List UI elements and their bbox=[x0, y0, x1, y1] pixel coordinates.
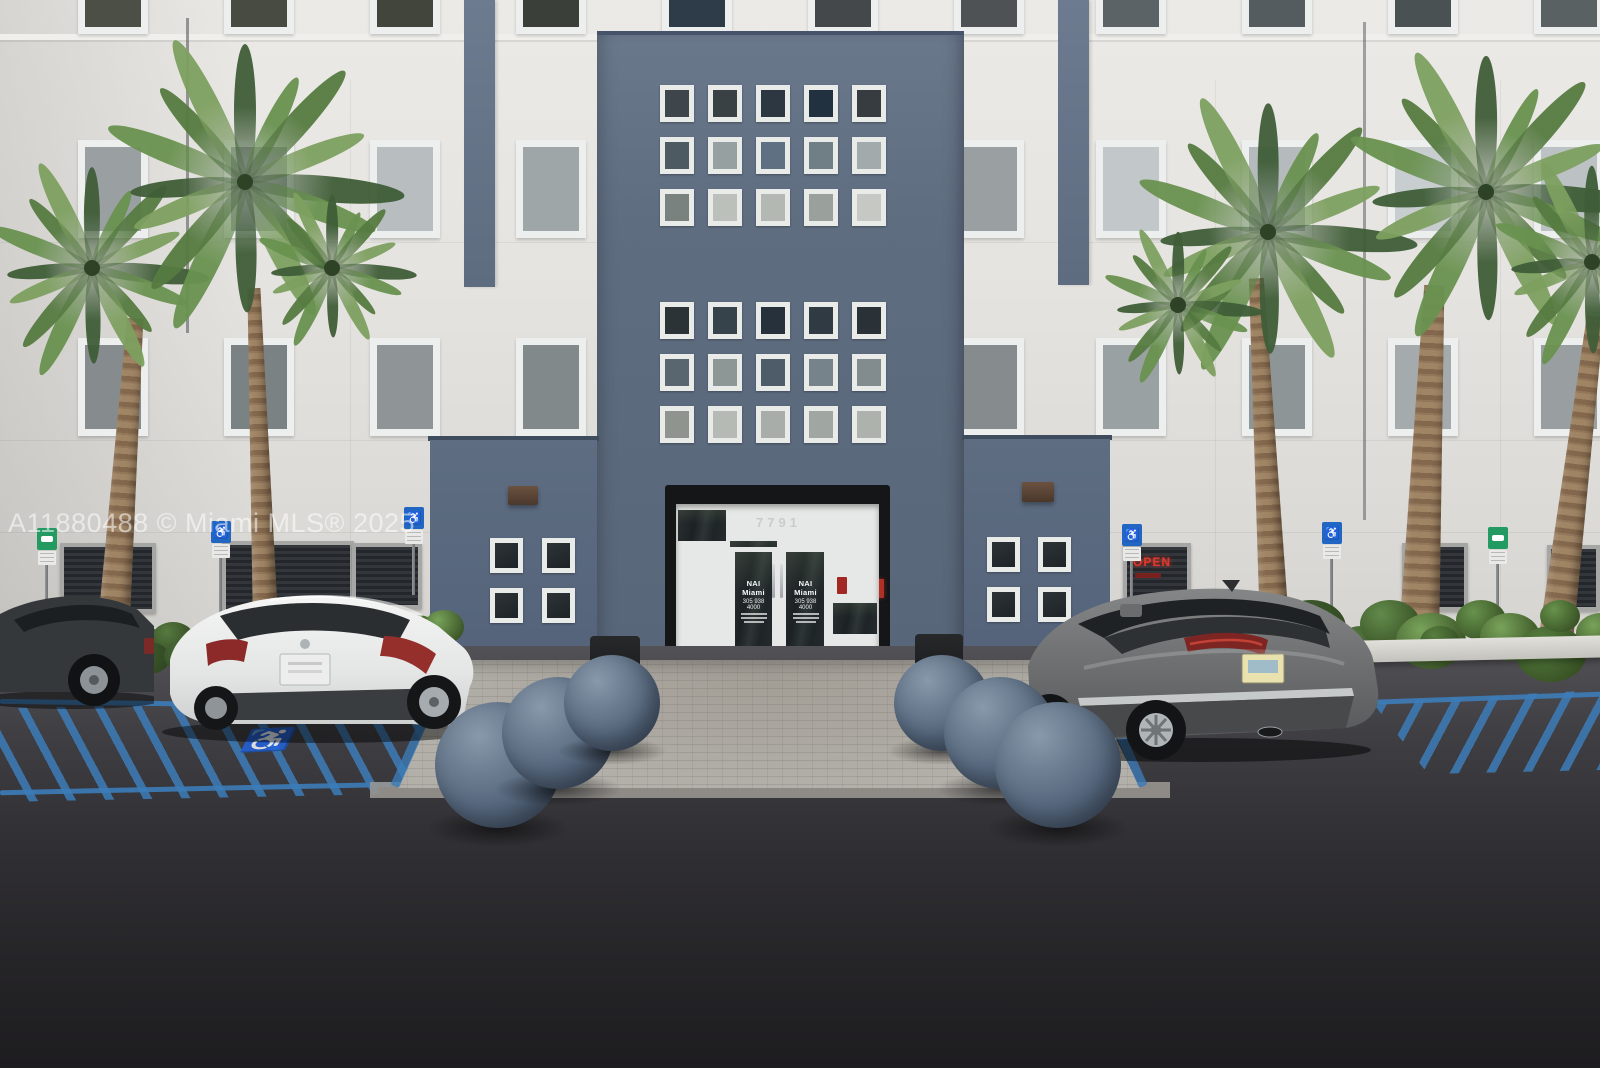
window-glass bbox=[523, 147, 579, 231]
window bbox=[808, 0, 878, 34]
window-glass bbox=[1249, 0, 1305, 27]
window bbox=[708, 189, 742, 226]
window-glass bbox=[377, 345, 433, 429]
window bbox=[987, 537, 1020, 572]
window-glass bbox=[857, 142, 881, 169]
window bbox=[1242, 0, 1312, 34]
side-mirror bbox=[1120, 604, 1142, 617]
window-glass bbox=[547, 543, 570, 568]
window bbox=[708, 406, 742, 443]
license-plate bbox=[280, 654, 330, 685]
office-building-photo: OPEN 7791 NAI Miami 305 93 bbox=[0, 0, 1600, 1068]
window-glass bbox=[992, 542, 1015, 567]
window-glass bbox=[857, 307, 881, 334]
window-glass bbox=[961, 0, 1017, 27]
blue-accent-stripe bbox=[464, 0, 495, 287]
window-glass bbox=[713, 194, 737, 221]
window bbox=[660, 85, 694, 122]
window bbox=[1534, 0, 1600, 34]
window-glass bbox=[761, 142, 785, 169]
window bbox=[756, 354, 790, 391]
window bbox=[852, 354, 886, 391]
window bbox=[804, 137, 838, 174]
window-glass bbox=[761, 90, 785, 117]
palm-crown-bud bbox=[1260, 224, 1276, 240]
window bbox=[756, 302, 790, 339]
window bbox=[490, 588, 523, 623]
door-handle[interactable] bbox=[780, 564, 783, 598]
window-glass bbox=[857, 194, 881, 221]
door-sign-fineprint bbox=[788, 613, 823, 623]
mls-watermark: A11880488 © Miami MLS® 2025 bbox=[8, 508, 415, 539]
window-glass bbox=[547, 593, 570, 618]
window bbox=[1038, 537, 1071, 572]
door-sign-fineprint bbox=[736, 613, 771, 623]
toyota-emblem bbox=[300, 639, 310, 649]
wall-sconce-light bbox=[1022, 482, 1054, 502]
sign-plate bbox=[1123, 547, 1141, 561]
window bbox=[852, 406, 886, 443]
window bbox=[224, 0, 294, 34]
window bbox=[756, 85, 790, 122]
window-glass bbox=[809, 307, 833, 334]
green-parking-sign bbox=[1488, 527, 1508, 613]
car-glyph bbox=[1492, 535, 1504, 541]
transom-window bbox=[833, 603, 877, 634]
window bbox=[660, 137, 694, 174]
window-glass bbox=[761, 307, 785, 334]
window bbox=[370, 0, 440, 34]
window-glass bbox=[809, 359, 833, 386]
parked-suv-dark bbox=[0, 578, 154, 710]
palm-crown-bud bbox=[324, 260, 340, 276]
window bbox=[708, 302, 742, 339]
window bbox=[756, 189, 790, 226]
sphere-bollard bbox=[564, 655, 660, 751]
window bbox=[804, 189, 838, 226]
sign-plate bbox=[1323, 545, 1341, 559]
window-glass bbox=[665, 142, 689, 169]
window-glass bbox=[523, 345, 579, 429]
sign-plate bbox=[38, 551, 56, 565]
window-glass bbox=[761, 359, 785, 386]
palm-crown-bud bbox=[84, 260, 100, 276]
hedge-shrub bbox=[1540, 600, 1580, 632]
window bbox=[804, 406, 838, 443]
entry-door-left[interactable]: NAI Miami 305 938 4000 bbox=[730, 547, 777, 652]
window-glass bbox=[809, 142, 833, 169]
window-glass bbox=[231, 0, 287, 27]
entry-door-right[interactable]: NAI Miami 305 938 4000 bbox=[781, 547, 829, 652]
address-number: 7791 bbox=[731, 515, 826, 530]
window bbox=[1388, 0, 1458, 34]
window-glass bbox=[992, 592, 1015, 617]
window bbox=[516, 0, 586, 34]
wheelchair-icon: ♿ bbox=[1322, 522, 1342, 544]
wall-sconce-light bbox=[508, 486, 538, 505]
window bbox=[660, 406, 694, 443]
window-glass bbox=[665, 194, 689, 221]
window bbox=[662, 0, 732, 34]
palm-crown-bud bbox=[1170, 297, 1186, 313]
window-glass bbox=[713, 359, 737, 386]
window bbox=[708, 354, 742, 391]
window-glass bbox=[665, 307, 689, 334]
parked-car-white bbox=[150, 580, 482, 746]
door-handle[interactable] bbox=[772, 564, 775, 598]
window-glass bbox=[857, 411, 881, 438]
window bbox=[852, 85, 886, 122]
door-sign-phone: 305 938 4000 bbox=[736, 599, 771, 611]
window-glass bbox=[1541, 0, 1597, 27]
window bbox=[954, 338, 1024, 436]
window bbox=[708, 85, 742, 122]
sign-plate bbox=[1489, 550, 1507, 564]
window-glass bbox=[665, 359, 689, 386]
window bbox=[852, 189, 886, 226]
window bbox=[852, 302, 886, 339]
window bbox=[78, 0, 148, 34]
window bbox=[954, 140, 1024, 238]
window-glass bbox=[809, 90, 833, 117]
window-glass bbox=[857, 90, 881, 117]
window-glass bbox=[713, 307, 737, 334]
window-glass bbox=[761, 194, 785, 221]
window-glass bbox=[761, 411, 785, 438]
window-glass bbox=[713, 90, 737, 117]
window-glass bbox=[809, 194, 833, 221]
window-glass bbox=[815, 0, 871, 27]
window bbox=[660, 302, 694, 339]
window bbox=[756, 406, 790, 443]
storefront-frame: 7791 NAI Miami 305 938 4000 NAI Miami 30… bbox=[676, 504, 879, 662]
wheelchair-icon: ♿ bbox=[1122, 524, 1142, 546]
window-glass bbox=[713, 411, 737, 438]
window-glass bbox=[857, 359, 881, 386]
window bbox=[804, 354, 838, 391]
window bbox=[852, 137, 886, 174]
blue-accent-stripe bbox=[1058, 0, 1089, 285]
palm-crown-bud bbox=[1584, 254, 1600, 270]
window-glass bbox=[1395, 0, 1451, 27]
window bbox=[516, 338, 586, 436]
window-glass bbox=[809, 411, 833, 438]
window-glass bbox=[495, 593, 518, 618]
window-glass bbox=[495, 543, 518, 568]
window-glass bbox=[665, 90, 689, 117]
transom-window bbox=[678, 510, 726, 541]
window bbox=[660, 189, 694, 226]
window bbox=[542, 588, 575, 623]
window bbox=[954, 0, 1024, 34]
window-glass bbox=[713, 142, 737, 169]
window bbox=[542, 538, 575, 573]
door-sign: NAI Miami 305 938 4000 bbox=[788, 579, 823, 623]
palm-crown-bud bbox=[1478, 184, 1494, 200]
fire-alarm-pull bbox=[837, 577, 847, 594]
window bbox=[660, 354, 694, 391]
window bbox=[756, 137, 790, 174]
door-sign-brand: NAI Miami bbox=[736, 579, 771, 597]
window-glass bbox=[665, 411, 689, 438]
window bbox=[804, 302, 838, 339]
car-icon bbox=[1488, 527, 1508, 549]
window bbox=[516, 140, 586, 238]
entrance-recess: 7791 NAI Miami 305 938 4000 NAI Miami 30… bbox=[665, 485, 890, 667]
tower-cap bbox=[597, 31, 964, 35]
door-sign-brand: NAI Miami bbox=[788, 579, 823, 597]
window bbox=[490, 538, 523, 573]
window-glass bbox=[377, 0, 433, 27]
window-glass bbox=[669, 0, 725, 27]
window bbox=[1096, 0, 1166, 34]
window-glass bbox=[961, 147, 1017, 231]
window-glass bbox=[523, 0, 579, 27]
door-sign-phone: 305 938 4000 bbox=[788, 599, 823, 611]
sign-plate bbox=[212, 544, 230, 558]
window bbox=[804, 85, 838, 122]
window-glass bbox=[961, 345, 1017, 429]
window-glass bbox=[85, 0, 141, 27]
window-glass bbox=[1043, 542, 1066, 567]
window bbox=[370, 338, 440, 436]
window-glass bbox=[1103, 0, 1159, 27]
sphere-bollard bbox=[995, 702, 1121, 828]
door-sign: NAI Miami 305 938 4000 bbox=[736, 579, 771, 623]
window bbox=[708, 137, 742, 174]
palm-crown-bud bbox=[237, 174, 253, 190]
exhaust-tip bbox=[1258, 727, 1282, 737]
